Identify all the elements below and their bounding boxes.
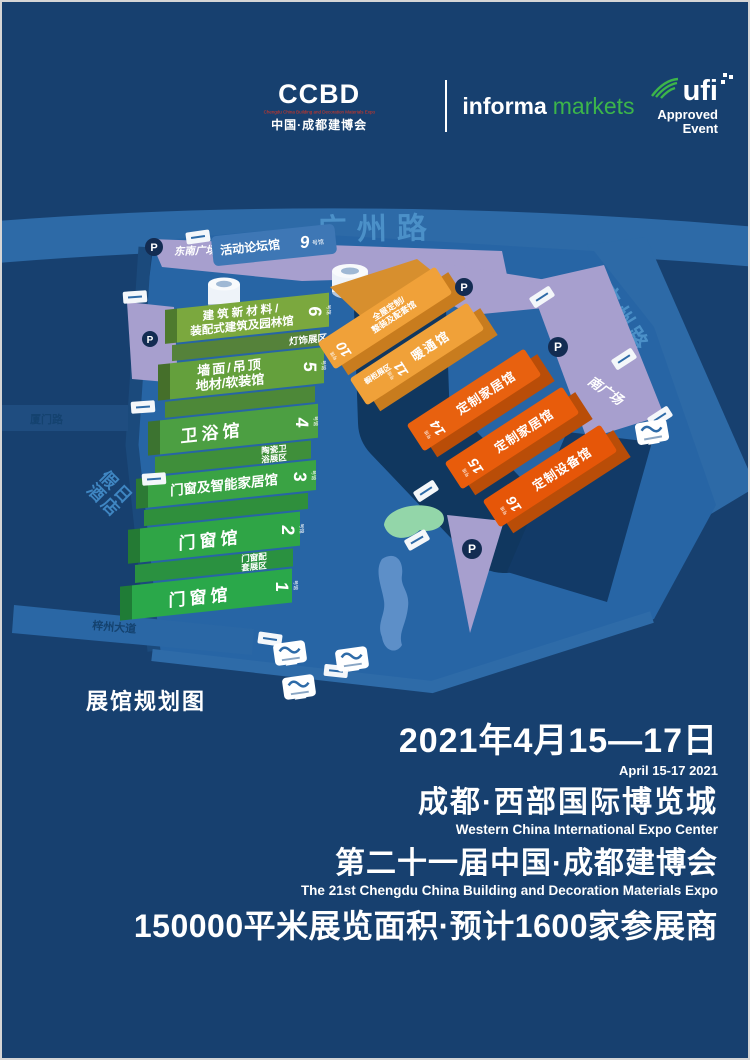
svg-text:P: P <box>460 282 467 294</box>
svg-text:4: 4 <box>292 415 312 428</box>
road-xiamen-band <box>2 405 128 431</box>
markets-word: markets <box>553 93 635 120</box>
ufi-event: Event <box>683 122 718 136</box>
venue-en: Western China International Expo Center <box>134 823 718 837</box>
date-en: April 15-17 2021 <box>134 764 718 778</box>
ufi-approved: Approved <box>657 108 718 122</box>
svg-text:号馆: 号馆 <box>292 580 299 591</box>
svg-text:号馆: 号馆 <box>298 523 305 534</box>
svg-text:号馆: 号馆 <box>325 304 332 315</box>
venue-cn: 成都·西部国际博览城 <box>134 787 718 819</box>
footer-info: 2021年4月15—17日 April 15-17 2021 成都·西部国际博览… <box>134 724 718 943</box>
ccbd-logo-dots-icon <box>723 73 727 77</box>
informa-word: informa <box>462 93 546 120</box>
svg-text:P: P <box>147 335 154 346</box>
ccbd-logo-text: CCBD <box>278 81 360 108</box>
ccbd-tagline: Chengdu China Building and Decoration Ma… <box>263 110 374 113</box>
svg-text:号馆: 号馆 <box>320 360 327 371</box>
map-caption: 展馆规划图 <box>86 684 206 716</box>
header-logos: CCBD Chengdu China Building and Decorati… <box>208 76 718 136</box>
svg-text:P: P <box>554 340 562 354</box>
ccbd-logo: CCBD Chengdu China Building and Decorati… <box>208 81 431 131</box>
svg-text:1: 1 <box>272 581 292 593</box>
se-plaza-label: 东南广场 <box>174 243 218 258</box>
ccbd-chinese-name: 中国·成都建博会 <box>271 119 367 131</box>
svg-text:号馆: 号馆 <box>312 416 319 427</box>
svg-text:P: P <box>150 242 157 254</box>
svg-text:号馆: 号馆 <box>310 470 317 481</box>
date-cn: 2021年4月15—17日 <box>134 724 718 760</box>
expo-stats: 150000平米展览面积·预计1600家参展商 <box>134 910 718 944</box>
svg-text:2: 2 <box>278 523 298 536</box>
venue-map: 厦门路 梓州大道 广州路 广州路 假日 酒店 南广场 东南广场 活动论坛馆 9 … <box>2 187 750 727</box>
ufi-word: ufi <box>683 76 718 108</box>
logo-divider <box>445 80 447 132</box>
road-xiamen-label: 厦门路 <box>30 412 64 426</box>
ufi-logo: ufi Approved Event <box>650 76 718 136</box>
expo-title-en: The 21st Chengdu China Building and Deco… <box>134 884 718 898</box>
expo-poster: CCBD Chengdu China Building and Decorati… <box>0 0 750 1060</box>
svg-text:P: P <box>468 542 476 556</box>
svg-text:3: 3 <box>290 471 310 483</box>
ufi-swoosh-icon <box>650 76 680 100</box>
informa-markets-logo: informa markets <box>462 93 634 120</box>
expo-title-cn: 第二十一届中国·成都建博会 <box>134 848 718 880</box>
